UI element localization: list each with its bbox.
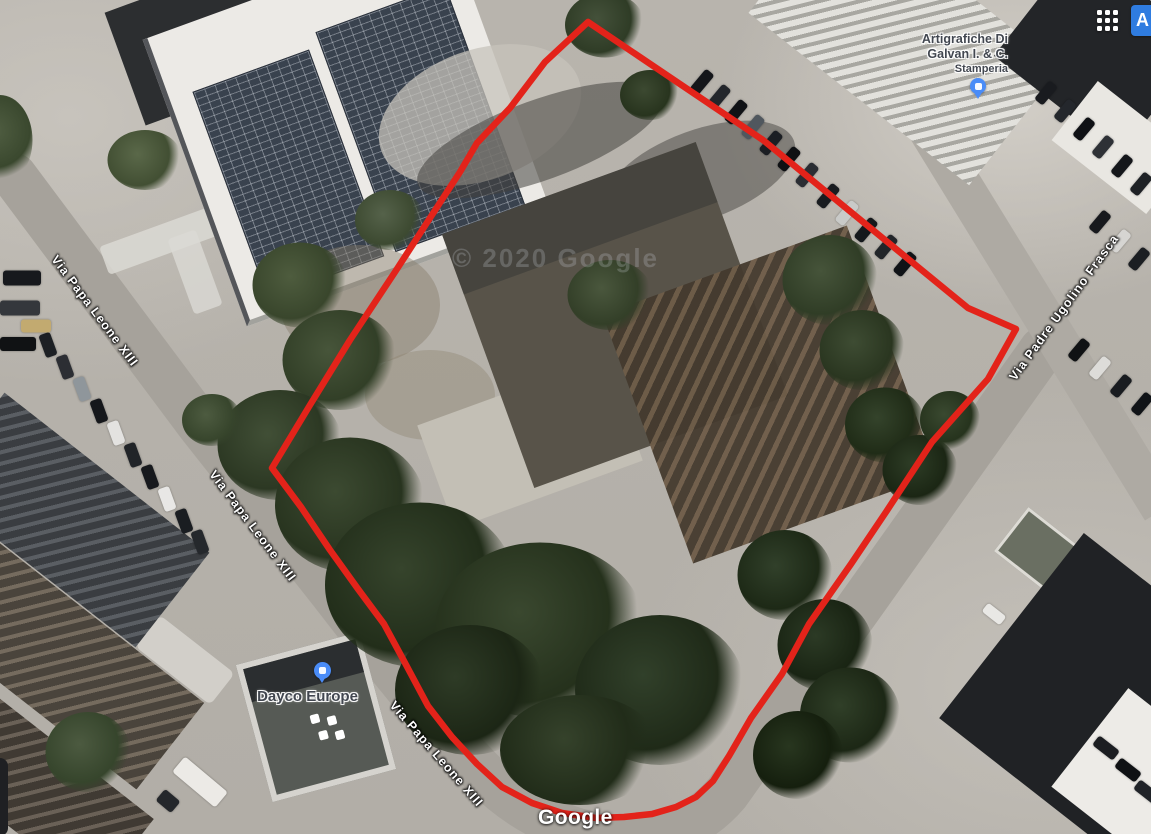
dayco-poi-pin-icon[interactable] — [314, 662, 331, 679]
property-boundary-polygon — [272, 22, 1016, 818]
poi-label-artigrafiche[interactable]: Artigrafiche Di Galvan I. & C. Stamperia — [878, 32, 1008, 77]
boundary-overlay — [0, 0, 1151, 834]
avatar-letter: A — [1136, 10, 1149, 31]
account-avatar[interactable]: A — [1131, 5, 1151, 36]
poi-label-line: Stamperia — [878, 62, 1008, 77]
map-canvas[interactable]: © 2020 Google Via Papa Leone XIII Via Pa… — [0, 0, 1151, 834]
poi-label-line: Galvan I. & C. — [878, 47, 1008, 62]
partial-ui-control[interactable] — [0, 758, 8, 834]
artigrafiche-poi-pin-icon[interactable] — [970, 78, 986, 94]
apps-grid-icon[interactable] — [1097, 10, 1118, 31]
google-logo-watermark: Google — [538, 806, 613, 830]
poi-label-line: Artigrafiche Di — [878, 32, 1008, 47]
poi-label-dayco[interactable]: Dayco Europe — [250, 688, 365, 705]
